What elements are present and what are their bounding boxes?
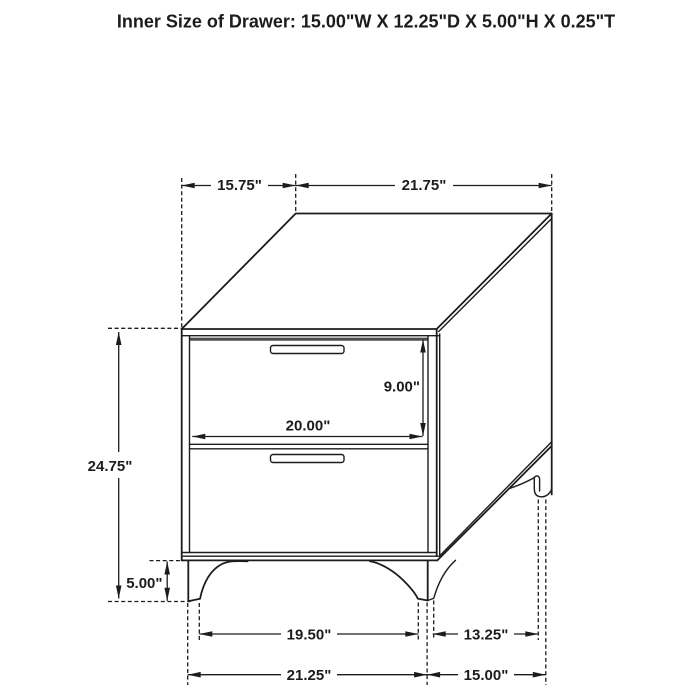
dimension-label: 15.00" bbox=[464, 667, 509, 684]
dimension-label: 9.00" bbox=[384, 379, 420, 396]
front-right-leg bbox=[370, 560, 428, 600]
dimension-top-width: 21.75" bbox=[296, 177, 552, 194]
nightstand-drawing bbox=[182, 214, 552, 602]
dimension-label: 5.00" bbox=[126, 575, 162, 592]
dimension-label: 24.75" bbox=[88, 458, 133, 475]
dimension-top-depth: 15.75" bbox=[182, 177, 296, 194]
dimension-drawer-opening-width: 20.00" bbox=[192, 418, 422, 437]
dimension-label: 21.25" bbox=[287, 667, 332, 684]
front-right-leg-side-face bbox=[428, 560, 456, 600]
diagram-title: Inner Size of Drawer: 15.00"W X 12.25"D … bbox=[117, 12, 615, 32]
dimension-label: 15.75" bbox=[217, 177, 262, 194]
dimension-diagram-page: Inner Size of Drawer: 15.00"W X 12.25"D … bbox=[0, 0, 700, 700]
side-bottom-inner-edge bbox=[440, 442, 552, 556]
dimension-leg-height: 5.00" bbox=[126, 562, 167, 601]
back-right-leg-front-edge bbox=[534, 476, 539, 491]
back-right-leg-foot bbox=[534, 478, 551, 497]
dimension-label: 13.25" bbox=[464, 627, 509, 644]
dimension-front-feet-inner-span: 19.50" bbox=[199, 625, 418, 644]
back-right-leg-curve bbox=[509, 478, 535, 489]
dimension-label: 21.75" bbox=[402, 177, 447, 194]
top-face-outline bbox=[182, 214, 552, 330]
top-drawer-handle bbox=[271, 346, 345, 354]
dimension-side-base-depth: 15.00" bbox=[427, 666, 546, 685]
dimension-side-feet-span: 13.25" bbox=[433, 625, 539, 644]
nightstand-dimension-diagram: Inner Size of Drawer: 15.00"W X 12.25"D … bbox=[0, 0, 700, 700]
bottom-drawer-handle bbox=[271, 455, 345, 463]
front-left-leg bbox=[188, 560, 247, 601]
dimension-overall-height: 24.75" bbox=[81, 332, 139, 599]
dimension-front-base-width: 21.25" bbox=[188, 666, 427, 685]
top-edge-thickness-line bbox=[439, 219, 552, 332]
dimension-drawer-opening-height: 9.00" bbox=[384, 340, 423, 437]
dimension-label: 20.00" bbox=[286, 418, 331, 435]
side-bottom-edge bbox=[437, 446, 551, 561]
dimension-label: 19.50" bbox=[287, 627, 332, 644]
